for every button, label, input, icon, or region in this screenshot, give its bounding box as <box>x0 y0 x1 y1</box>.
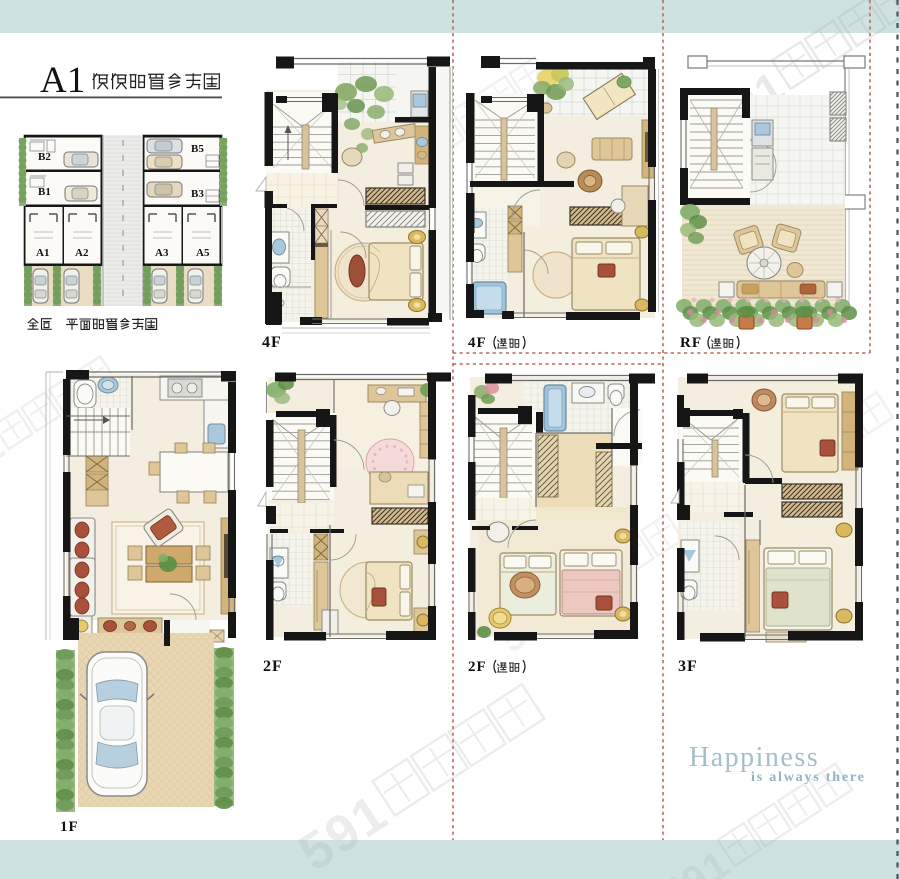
svg-text:2F: 2F <box>263 658 283 675</box>
svg-text:B5: B5 <box>191 143 204 155</box>
svg-text:RF: RF <box>680 335 702 351</box>
svg-text:Happiness: Happiness <box>689 742 819 773</box>
svg-text:1F: 1F <box>60 819 79 835</box>
svg-text:A1: A1 <box>40 60 85 101</box>
svg-text:B3: B3 <box>191 188 204 200</box>
svg-text:A2: A2 <box>75 247 89 259</box>
svg-text:4F: 4F <box>468 335 487 351</box>
svg-text:A5: A5 <box>196 247 210 259</box>
svg-text:A1: A1 <box>36 247 49 259</box>
svg-text:2F: 2F <box>468 659 487 675</box>
svg-text:A3: A3 <box>155 247 169 259</box>
svg-text:3F: 3F <box>678 658 698 675</box>
svg-text:B1: B1 <box>38 186 51 198</box>
svg-text:4F: 4F <box>262 334 282 351</box>
svg-text:B2: B2 <box>38 151 51 163</box>
